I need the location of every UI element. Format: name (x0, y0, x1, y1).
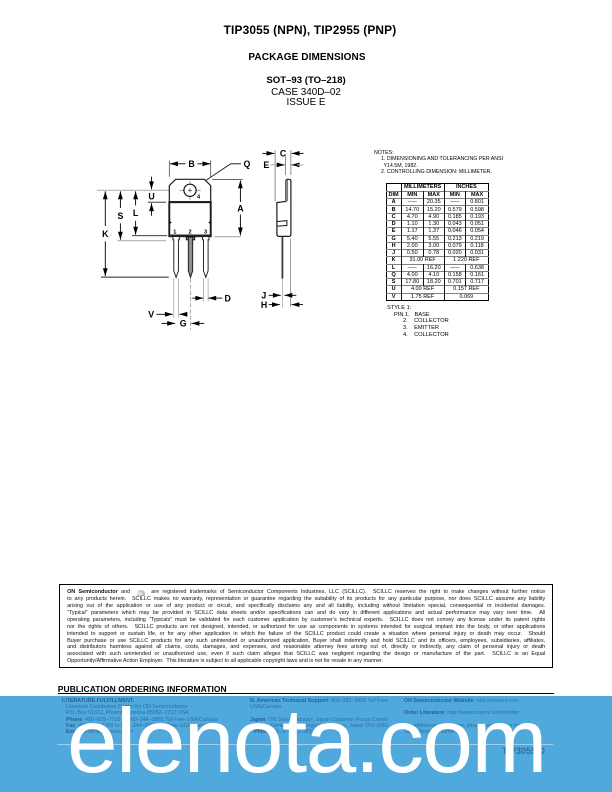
svg-text:B: B (188, 159, 194, 169)
svg-text:K: K (102, 229, 109, 239)
svg-text:1: 1 (173, 230, 176, 236)
svg-text:Q: Q (244, 159, 251, 169)
svg-text:V: V (148, 310, 154, 320)
svg-text:A: A (237, 203, 244, 213)
svg-text:E: E (263, 160, 269, 170)
svg-text:S: S (117, 211, 123, 221)
svg-text:L: L (133, 208, 139, 218)
svg-text:D: D (225, 293, 231, 303)
svg-text:U: U (148, 192, 154, 202)
svg-text:3: 3 (204, 230, 207, 236)
svg-text:H: H (261, 300, 267, 310)
svg-text:2: 2 (189, 230, 192, 236)
svg-text:G: G (180, 319, 187, 329)
svg-text:C: C (280, 149, 287, 159)
